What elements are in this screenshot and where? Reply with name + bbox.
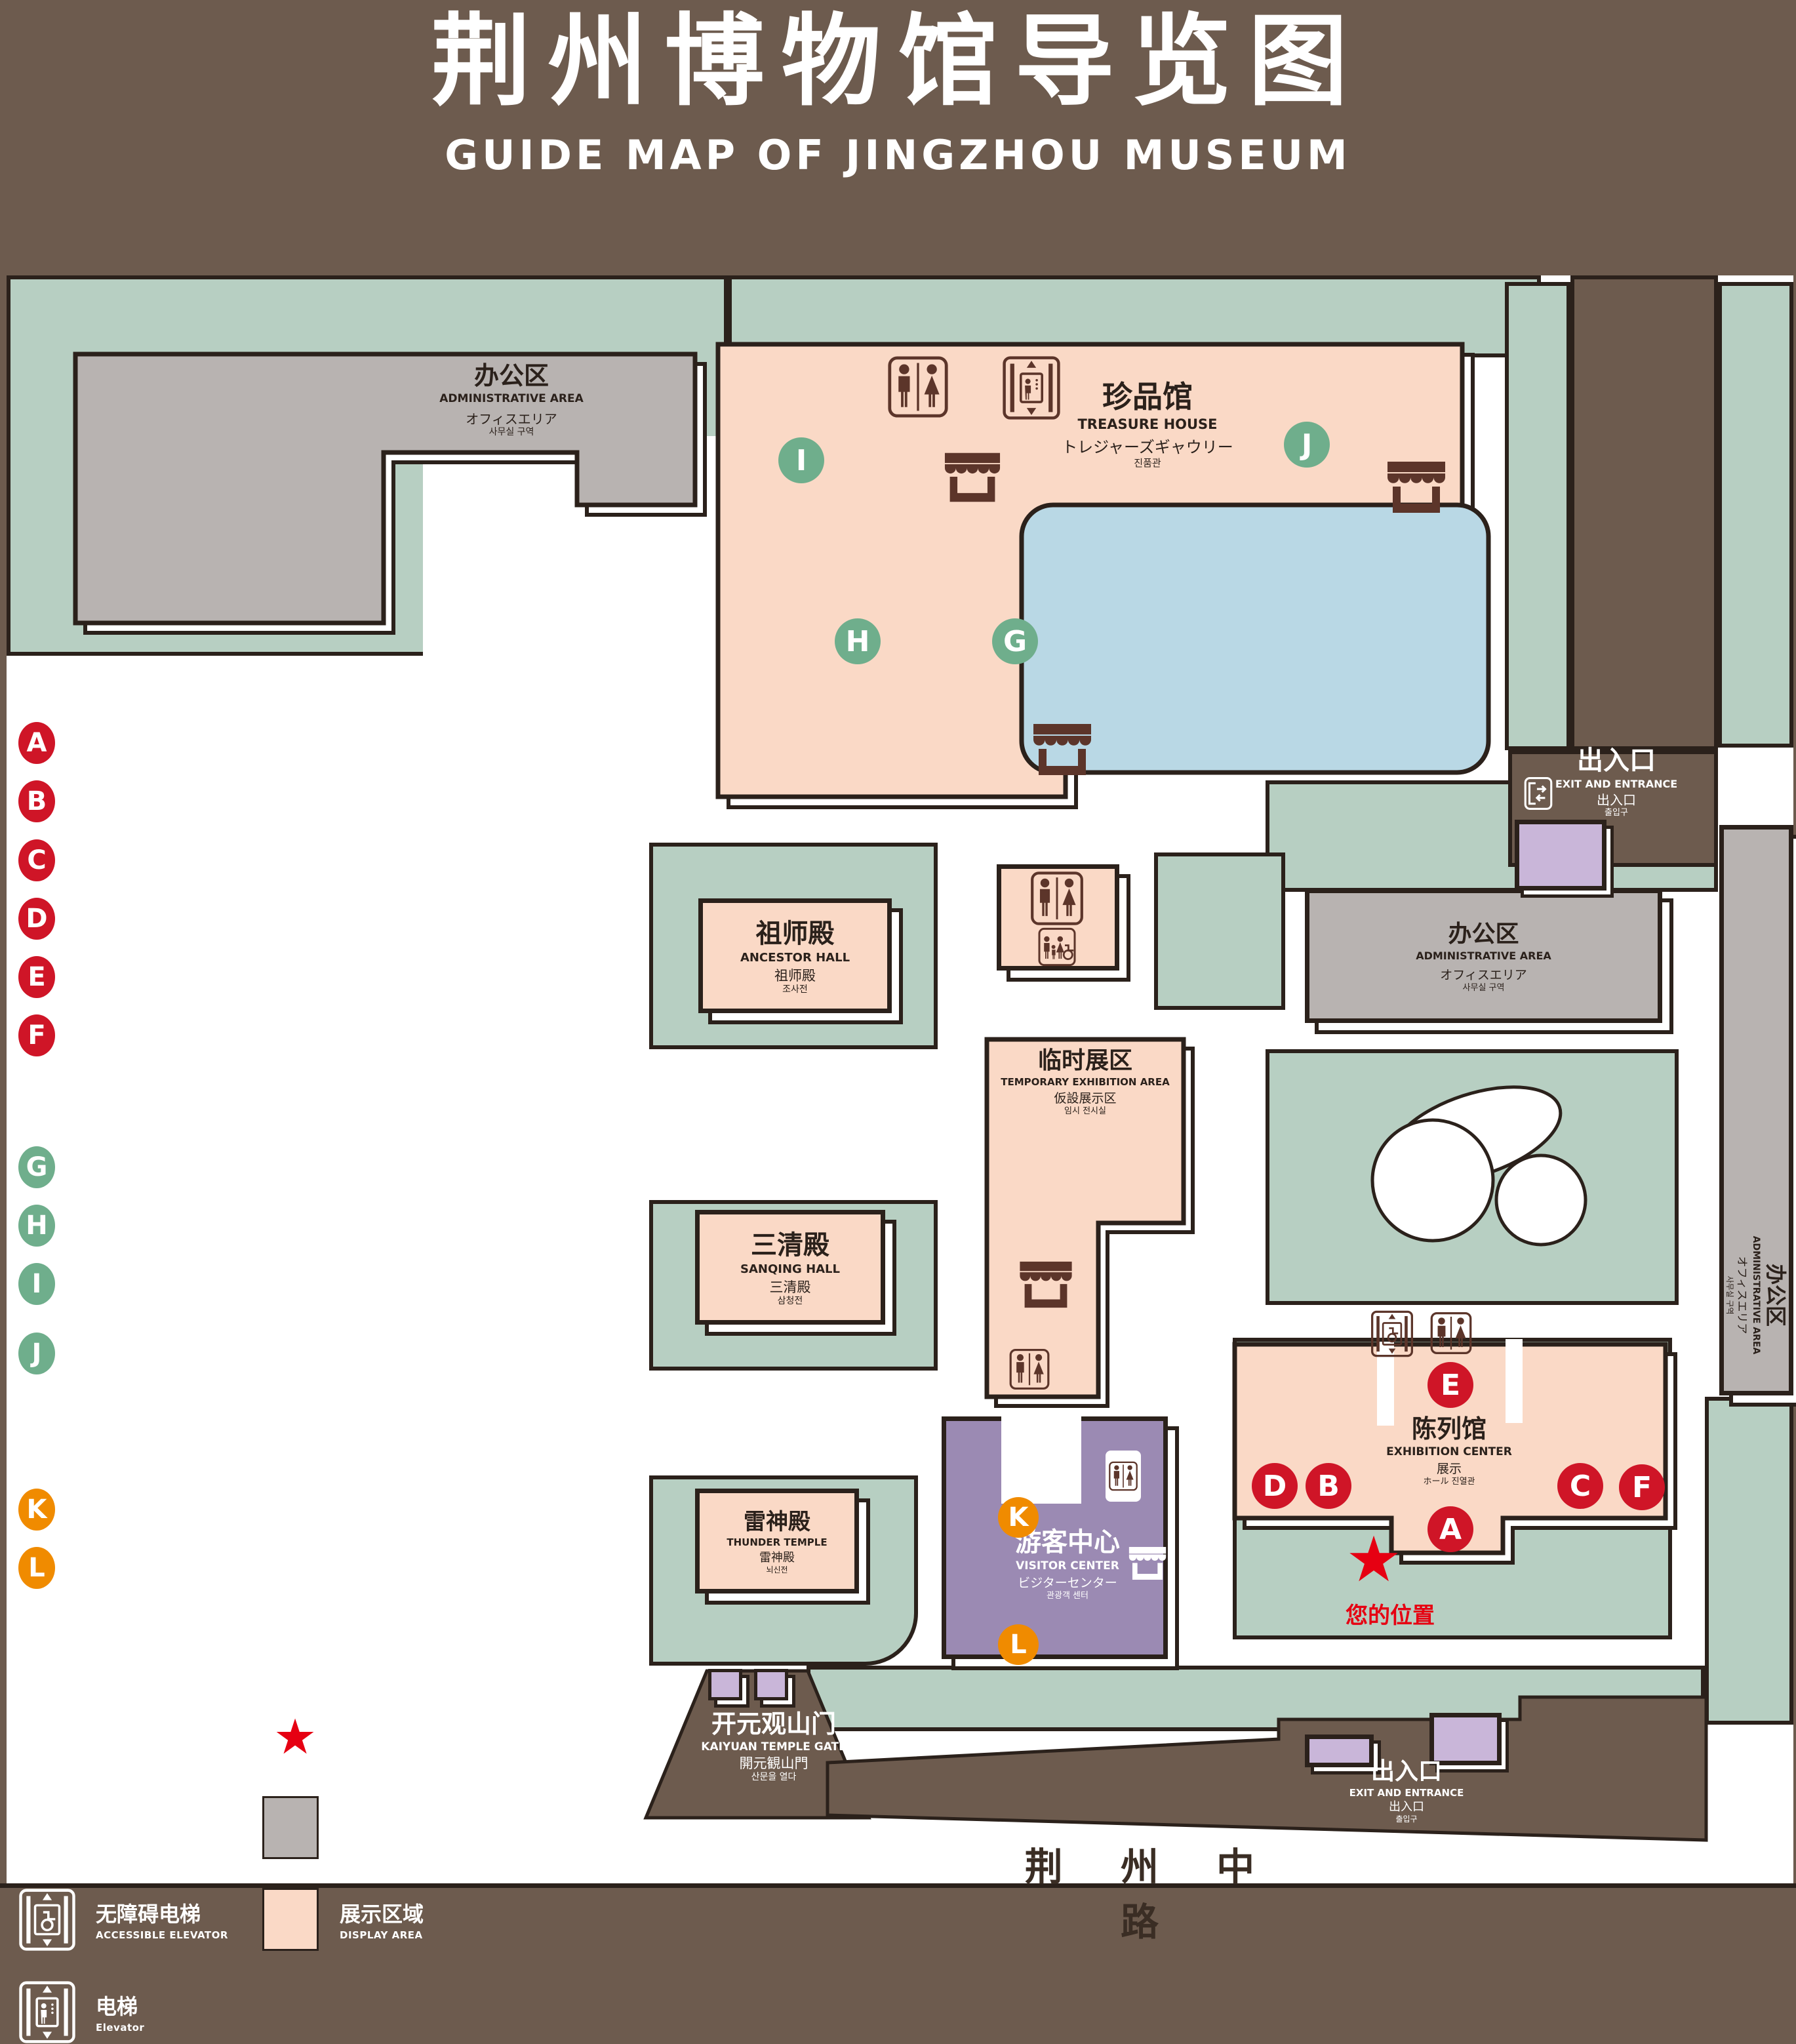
map-marker-k: K	[998, 1497, 1039, 1538]
gate-post-right	[754, 1669, 788, 1700]
legend-item-i: I 五大夫遂——凤凰山168号汉墓展WUDAFU—EXHIBITION OF N…	[18, 1260, 504, 1317]
gate-post-left	[708, 1669, 742, 1700]
restrooms-icon	[1028, 871, 1087, 926]
store-icon	[18, 1624, 76, 1675]
legend-display-area: 展示区域DISPLAY AREA	[262, 1888, 504, 1952]
floor-label: 2F	[431, 953, 504, 987]
legend-accessible-elevator: 无障碍电梯ACCESSIBLE ELEVATOR	[18, 1888, 262, 1952]
marker-badge-k: K	[18, 1489, 55, 1531]
accessible-elevator-icon	[1370, 1306, 1414, 1361]
lawn-east-top	[1718, 282, 1793, 748]
legend-item-c: C 江汉平原原始文化展JIANGHAN PLAIN PRIMITIVE CULT…	[18, 837, 504, 882]
floor-label: 1F	[431, 837, 504, 870]
floor-label: 1F	[431, 1486, 504, 1519]
admin-east-label: 办公区 ADMINISTRATIVE AREA オフィスエリア 사무실 구역	[1720, 1148, 1792, 1443]
marker-badge-g: G	[18, 1146, 55, 1188]
store-icon	[1029, 720, 1095, 779]
admin-mid-label: 办公区 ADMINISTRATIVE AREA オフィスエリア 사무실 구역	[1305, 895, 1662, 1020]
lawn-south-band	[807, 1666, 1705, 1731]
lawn-north-strip	[728, 275, 1541, 357]
restrooms-icon	[1106, 1451, 1141, 1502]
legend-elevator: 电梯Elevator	[18, 1980, 262, 2044]
map-marker-d: D	[1252, 1463, 1298, 1509]
family-restrooms-icon	[1036, 927, 1078, 967]
marker-badge-j: J	[18, 1333, 55, 1374]
admin-courtyard	[423, 436, 728, 656]
map-marker-l: L	[998, 1624, 1039, 1665]
store-icon	[941, 449, 1004, 506]
accessible-elevator-icon	[18, 1888, 76, 1952]
exhibition-center-slot-right	[1506, 1339, 1523, 1423]
lawn-east-bottom	[1705, 1397, 1793, 1725]
legend-section-visitor-center: 游客中心 VISITOR CENTER	[21, 1417, 504, 1466]
marker-badge-b: B	[18, 780, 55, 822]
visitor-center-notch	[1001, 1412, 1081, 1504]
your-location-star-icon: ★	[273, 1713, 317, 1761]
south-exit-building-right	[1429, 1713, 1502, 1765]
map-marker-e: E	[1427, 1362, 1473, 1408]
north-exit-plaza	[1570, 275, 1718, 750]
floor-label: 1F	[431, 778, 504, 811]
display-area-swatch	[262, 1888, 319, 1951]
legend-item-g: G 放映厅PROJECTION HALL 1F	[18, 1144, 504, 1189]
exit-south-label: 出入口 EXIT AND ENTRANCE 出入口 출입구	[1321, 1759, 1492, 1824]
road-label: 荆 州 中 路	[1010, 1836, 1292, 1946]
admin-nw-label: 办公区 ADMINISTRATIVE AREA オフィスエリア 사무실 구역	[393, 362, 629, 438]
office-area-swatch	[262, 1796, 319, 1859]
legend-family-restrooms: 家庭卫生间FAMILY RESTROOMS	[18, 1796, 262, 1859]
marker-badge-d: D	[18, 898, 55, 940]
floor-label: 1F	[431, 1544, 504, 1578]
marker-badge-l: L	[18, 1547, 55, 1589]
sanqing-hall-label: 三清殿 SANQING HALL 三清殿 삼청전	[695, 1216, 885, 1321]
exit-entrance-icon	[1521, 776, 1555, 811]
floor-label: 2F	[431, 1012, 504, 1045]
exhibition-center-label: 陈列馆 EXHIBITION CENTER 展示 ホール 진열관	[1351, 1415, 1547, 1487]
floor-label: 1-2F	[431, 1330, 504, 1363]
legend-item-l: L 医疗点CLINIC 1F	[18, 1544, 504, 1590]
marker-badge-e: E	[18, 956, 55, 998]
ancestor-hall-label: 祖师殿 ANCESTOR HALL 祖师殿 조사전	[698, 905, 892, 1010]
lawn-center-small	[1154, 852, 1285, 1010]
legend-item-h: H 互动体验厅INTERACTIVE EXPERIENCE HALL 1F	[18, 1202, 504, 1247]
map-marker-a: A	[1427, 1506, 1473, 1552]
north-exit-side-building	[1515, 820, 1606, 891]
restrooms-icon	[1429, 1305, 1473, 1361]
legend-restrooms: 卫生间RESTROOMS	[18, 1707, 262, 1767]
restrooms-icon	[1008, 1348, 1050, 1390]
marker-badge-a: A	[18, 722, 55, 764]
legend-item-d: D 荆州出土瓷器展JINGZHOU UNEARTHED PORCELAIN EX…	[18, 895, 504, 940]
legend-icon-grid: 文创商店STORE 出入口EXIT AND ENTRANCE 卫生间RESTRO…	[18, 1622, 504, 2044]
map-marker-g: G	[992, 618, 1038, 664]
gate-label: 开元观山门 KAIYUAN TEMPLE GATE 開元観山門 산문을 열다	[662, 1710, 885, 1783]
legend-section-treasure-house: 珍品馆 TREASURE HOUSE	[21, 1075, 504, 1124]
map-marker-b: B	[1306, 1463, 1351, 1509]
lawn-garden	[1266, 1049, 1679, 1305]
treasure-house-label: 珍品馆 TREASURE HOUSE トレジャーズギャウリー 진품관	[1029, 380, 1266, 469]
legend-exit-entrance: 出入口EXIT AND ENTRANCE	[262, 1622, 504, 1678]
legend-store: 文创商店STORE	[18, 1622, 262, 1678]
exit-entrance-icon	[262, 1622, 319, 1678]
elevator-icon	[18, 1980, 76, 2044]
temporary-area-label: 临时展区 TEMPORARY EXHIBITION AREA 仮設展示区 임시 …	[987, 1048, 1184, 1117]
legend-your-location: ★ 您的位置YOUR LOCATION	[262, 1707, 504, 1767]
lawn-northeast-strip	[1505, 282, 1570, 750]
elevator-icon	[1002, 355, 1061, 420]
legend-item-b: B 荆州出土铜器展JINGZHOU UNEARTHED BRONZE WARE …	[18, 778, 504, 823]
page-subtitle: GUIDE MAP OF JINGZHOU MUSEUM	[0, 131, 1796, 179]
family-restrooms-icon	[18, 1797, 79, 1858]
map-marker-i: I	[778, 437, 824, 483]
floor-label: 2F	[431, 895, 504, 929]
restrooms-icon	[887, 355, 949, 418]
your-location-star-icon: ★	[1338, 1528, 1410, 1591]
guide-map-poster: { "title": {"zh": "荆州博物馆导览图", "en": "GUI…	[0, 0, 1796, 1920]
legend-item-e: E 荆州出土简牍展JINGZHOU EXCAVATED BAMBOO SLIPS…	[18, 953, 504, 999]
marker-badge-i: I	[18, 1263, 55, 1305]
legend-item-a: A 《火中的凤凰》壁画THE PHOENIX IN FIRE "MURAL PA…	[18, 719, 504, 765]
store-icon	[1016, 1258, 1075, 1312]
legend-office-area: 办公区域OFFICE AREA	[262, 1796, 504, 1859]
floor-label: 2F	[431, 1260, 504, 1294]
store-icon	[1384, 458, 1449, 517]
floor-label: 1F	[431, 1144, 504, 1177]
store-icon	[1127, 1534, 1168, 1592]
map-marker-c: C	[1557, 1463, 1603, 1509]
marker-badge-c: C	[18, 839, 55, 881]
restrooms-icon	[18, 1707, 79, 1767]
floor-label: 1F	[431, 1202, 504, 1235]
thunder-temple-label: 雷神殿 THUNDER TEMPLE 雷神殿 뇌신전	[695, 1494, 859, 1591]
marker-badge-f: F	[18, 1014, 55, 1056]
your-location-label: 您的位置	[1331, 1597, 1449, 1630]
floor-label: 1F	[431, 719, 504, 753]
map-marker-j: J	[1284, 422, 1330, 468]
legend-panel: 陈列馆 EXHIBITION CENTER A 《火中的凤凰》壁画THE PHO…	[18, 651, 504, 2044]
legend-section-exhibition-center: 陈列馆 EXHIBITION CENTER	[21, 651, 504, 700]
legend-item-f: F 荆州出土玉器展JINGZHOU UNEARTHED JADE EXHIBIT…	[18, 1012, 504, 1057]
page-title: 荆州博物馆导览图	[0, 7, 1796, 116]
marker-badge-h: H	[18, 1205, 55, 1247]
map-marker-f: F	[1619, 1464, 1665, 1510]
legend-item-k: K 安全保卫SECURITY 1F	[18, 1486, 504, 1531]
legend-item-j: J 丹漆神韵——楚秦汉漆器精品展ROMANTIC CHARM OF THE CR…	[18, 1330, 504, 1400]
map-marker-h: H	[835, 618, 881, 664]
